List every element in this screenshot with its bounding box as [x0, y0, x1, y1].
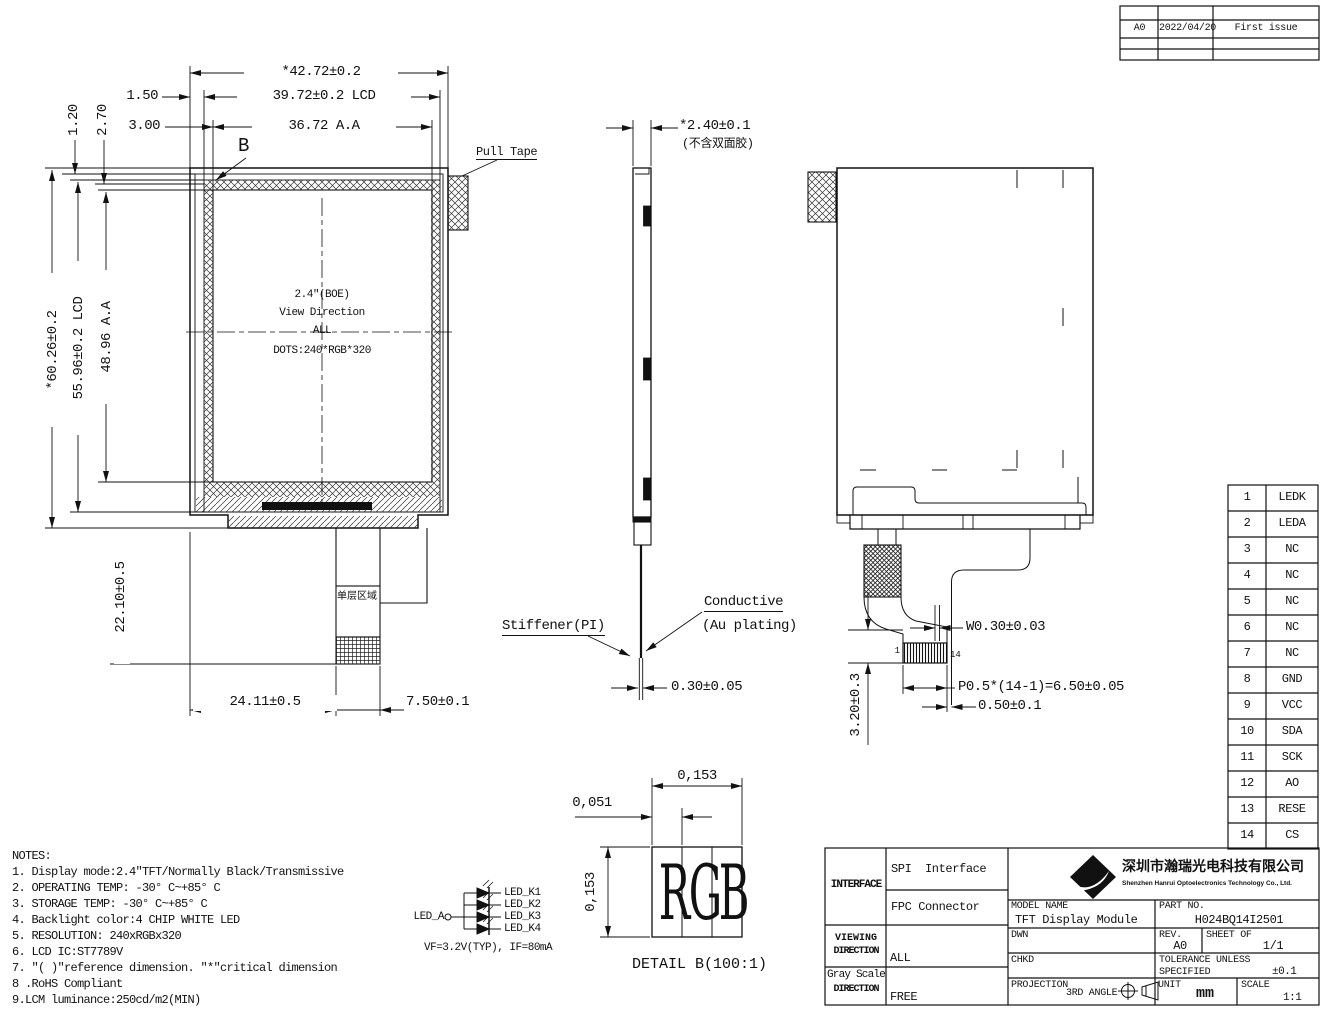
- note-4: 4. Backlight color:4 CHIP WHITE LED: [12, 912, 240, 928]
- pin-name: NC: [1266, 595, 1318, 608]
- panel-size-text: 2.4″(BOE): [222, 289, 422, 301]
- pin-name: NC: [1266, 543, 1318, 556]
- note-2: 2. OPERATING TEMP: -30° C~+85° C: [12, 880, 220, 896]
- pin-name: GND: [1266, 673, 1318, 686]
- led-k4-label: LED_K4: [504, 923, 541, 935]
- scale-label: SCALE: [1241, 980, 1270, 991]
- pin-name: LEDK: [1266, 491, 1318, 504]
- pin-name: LEDA: [1266, 517, 1318, 530]
- pin-no: 14: [1228, 829, 1266, 842]
- pin-name: NC: [1266, 569, 1318, 582]
- company-name-cn: 深圳市瀚瑞光电科技有限公司: [1122, 859, 1304, 875]
- view-direction-value: ALL: [222, 325, 422, 337]
- dim-aa-height: 48.96 A.A: [100, 270, 116, 404]
- dwn-label: DWN: [1011, 930, 1028, 941]
- pin-name: CS: [1266, 829, 1318, 842]
- subpixel-letter-b: B: [719, 850, 736, 936]
- pin-no: 10: [1228, 725, 1266, 738]
- pin-no: 6: [1228, 621, 1266, 634]
- viewing-value: ALL: [890, 952, 910, 965]
- projection-label: PROJECTION: [1011, 980, 1068, 991]
- led-k3-label: LED_K3: [504, 911, 541, 923]
- pin-no: 7: [1228, 647, 1266, 660]
- unit-value: mm: [1180, 986, 1230, 1003]
- tolerance-value: ±0.1: [1272, 966, 1296, 978]
- dim-connector-width: 7.50±0.1: [404, 695, 471, 711]
- back-view: [808, 168, 1093, 705]
- detail-dim-width: 0,153: [647, 769, 747, 785]
- note-3: 3. STORAGE TEMP: -30° C~+85° C: [12, 896, 207, 912]
- sheet-of-value: 1/1: [1248, 940, 1298, 953]
- scale-value: 1:1: [1283, 992, 1301, 1004]
- company-logo: [1070, 855, 1116, 899]
- pin-name: SCK: [1266, 751, 1318, 764]
- tolerance-label-2: SPECIFIED: [1159, 967, 1210, 978]
- model-name-value: TFT Display Module: [1015, 914, 1137, 927]
- led-symbols: [464, 880, 501, 935]
- note-6: 6. LCD IC:ST7789V: [12, 944, 123, 960]
- third-angle-projection-icon: [1118, 982, 1158, 1000]
- pin-no: 4: [1228, 569, 1266, 582]
- dim-1-50: 1.50: [110, 89, 158, 105]
- note-1: 1. Display mode:2.4″TFT/Normally Black/T…: [12, 864, 344, 880]
- detail-dim-subpixel: 0,051: [560, 796, 624, 812]
- note-9: 9.LCM luminance:250cd/m2(MIN): [12, 992, 201, 1008]
- led-spec-text: VF=3.2V(TYP), IF=80mA: [424, 942, 552, 954]
- pin-name: SDA: [1266, 725, 1318, 738]
- back-tape: [808, 172, 836, 222]
- pin-no: 11: [1228, 751, 1266, 764]
- dim-2-70: 2.70: [96, 90, 112, 150]
- pin-table-grid: [1228, 485, 1318, 849]
- dim-aa-width: 36.72 A.A: [252, 119, 396, 135]
- pin-name: RESE: [1266, 803, 1318, 816]
- pull-tape-label: Pull Tape: [476, 146, 537, 160]
- company-name-en: Shenzhen Hanrui Optoelectronics Technolo…: [1122, 880, 1292, 887]
- subpixel-letter-g: G: [689, 850, 706, 936]
- grayscale-label-1: Gray Scale: [826, 969, 886, 981]
- pin-no: 3: [1228, 543, 1266, 556]
- detail-b-marker: B: [238, 136, 249, 157]
- notes-title: NOTES:: [12, 848, 51, 864]
- pin-1-marker: 1: [886, 646, 900, 656]
- interface-value-spi: SPI Interface: [891, 863, 986, 876]
- engineering-drawing-page: { "revision_table": { "rev": "A0", "date…: [0, 0, 1321, 1010]
- conductive-label-2: (Au plating): [702, 619, 797, 635]
- dim-connector-height: 3.20±0.3: [849, 650, 865, 760]
- pin-14-marker: 14: [950, 650, 961, 660]
- interface-value-fpc: FPC Connector: [891, 901, 979, 914]
- projection-value: 3RD ANGLE: [1066, 988, 1117, 999]
- pin-no: 13: [1228, 803, 1266, 816]
- part-no-label: PART NO.: [1159, 901, 1205, 912]
- model-name-label: MODEL NAME: [1011, 901, 1068, 912]
- detail-b-leader: [216, 158, 246, 180]
- led-k1-label: LED_K1: [504, 887, 541, 899]
- note-8: 8 .RoHS Compliant: [12, 976, 123, 992]
- conductive-label: Conductive: [704, 595, 783, 612]
- detail-dim-height: 0,153: [584, 840, 600, 944]
- pin-name: VCC: [1266, 699, 1318, 712]
- sheet-of-label: SHEET OF: [1206, 930, 1252, 941]
- fpc-contact-fingers: [903, 643, 947, 663]
- side-view: [633, 168, 651, 700]
- rev-value: A0: [1160, 940, 1200, 953]
- pull-tape-shape: [448, 160, 497, 230]
- dim-lcd-width: 39.72±0.2 LCD: [237, 89, 411, 105]
- pin-name: NC: [1266, 647, 1318, 660]
- driver-ic-bar: [262, 502, 372, 510]
- pin-name: NC: [1266, 621, 1318, 634]
- pin-no: 5: [1228, 595, 1266, 608]
- dim-overall-width: *42.72±0.2: [244, 65, 398, 81]
- tolerance-label-1: TOLERANCE UNLESS: [1159, 955, 1250, 966]
- revision-rev: A0: [1121, 23, 1158, 34]
- grayscale-label-2: DIRECTION: [826, 984, 886, 995]
- revision-date: 2022/04/20: [1159, 23, 1212, 34]
- chkd-label: CHKD: [1011, 955, 1034, 966]
- back-view-dimensions: [848, 592, 976, 745]
- grayscale-value: FREE: [890, 991, 917, 1004]
- viewing-label-2: DIRECTION: [826, 946, 886, 957]
- dim-3-00: 3.00: [112, 119, 160, 135]
- dim-fpc-thickness: 0.30±0.05: [671, 680, 742, 696]
- revision-desc: First issue: [1214, 23, 1318, 34]
- side-view-dimensions: [588, 120, 702, 688]
- led-k2-label: LED_K2: [504, 899, 541, 911]
- backlight-component: [864, 545, 901, 597]
- interface-label: INTERFACE: [826, 879, 886, 891]
- pin-no: 12: [1228, 777, 1266, 790]
- view-direction-text: View Direction: [222, 307, 422, 319]
- dim-pin-width: W0.30±0.03: [966, 620, 1045, 636]
- subpixel-letter-r: R: [659, 850, 676, 936]
- unit-label: UNIT: [1158, 980, 1181, 991]
- dim-tail-offset: 24.11±0.5: [193, 695, 337, 711]
- pin-no: 8: [1228, 673, 1266, 686]
- dim-tail-length: 22.10±0.5: [114, 530, 130, 664]
- note-7: 7. ″( )″reference dimension. ″*″critical…: [12, 960, 337, 976]
- stiffener-label: Stiffener(PI): [502, 619, 605, 636]
- dim-overall-height: *60.26±0.2: [46, 273, 62, 427]
- dim-1-20: 1.20: [67, 90, 83, 150]
- detail-b-caption: DETAIL B(100:1): [617, 957, 782, 974]
- dim-edge: 0.50±0.1: [978, 699, 1041, 715]
- pin-no: 1: [1228, 491, 1266, 504]
- led-circuit-figure: [445, 880, 501, 935]
- thickness-note: (不含双面胶): [682, 138, 754, 151]
- pin-no: 9: [1228, 699, 1266, 712]
- dim-thickness: *2.40±0.1: [679, 119, 750, 135]
- dots-resolution-text: DOTS:240*RGB*320: [222, 345, 422, 357]
- led-anode-label: LED_A: [396, 911, 444, 923]
- viewing-label-1: VIEWING: [826, 933, 886, 944]
- pin-name: AO: [1266, 777, 1318, 790]
- note-5: 5. RESOLUTION: 240xRGBx320: [12, 928, 181, 944]
- dim-pitch: P0.5*(14-1)=6.50±0.05: [958, 680, 1124, 696]
- pin-no: 2: [1228, 517, 1266, 530]
- part-no-value: H024BQ14I2501: [1160, 914, 1318, 927]
- dim-lcd-height: 55.96±0.2 LCD: [72, 261, 88, 435]
- single-layer-label: 单层区域: [337, 592, 377, 603]
